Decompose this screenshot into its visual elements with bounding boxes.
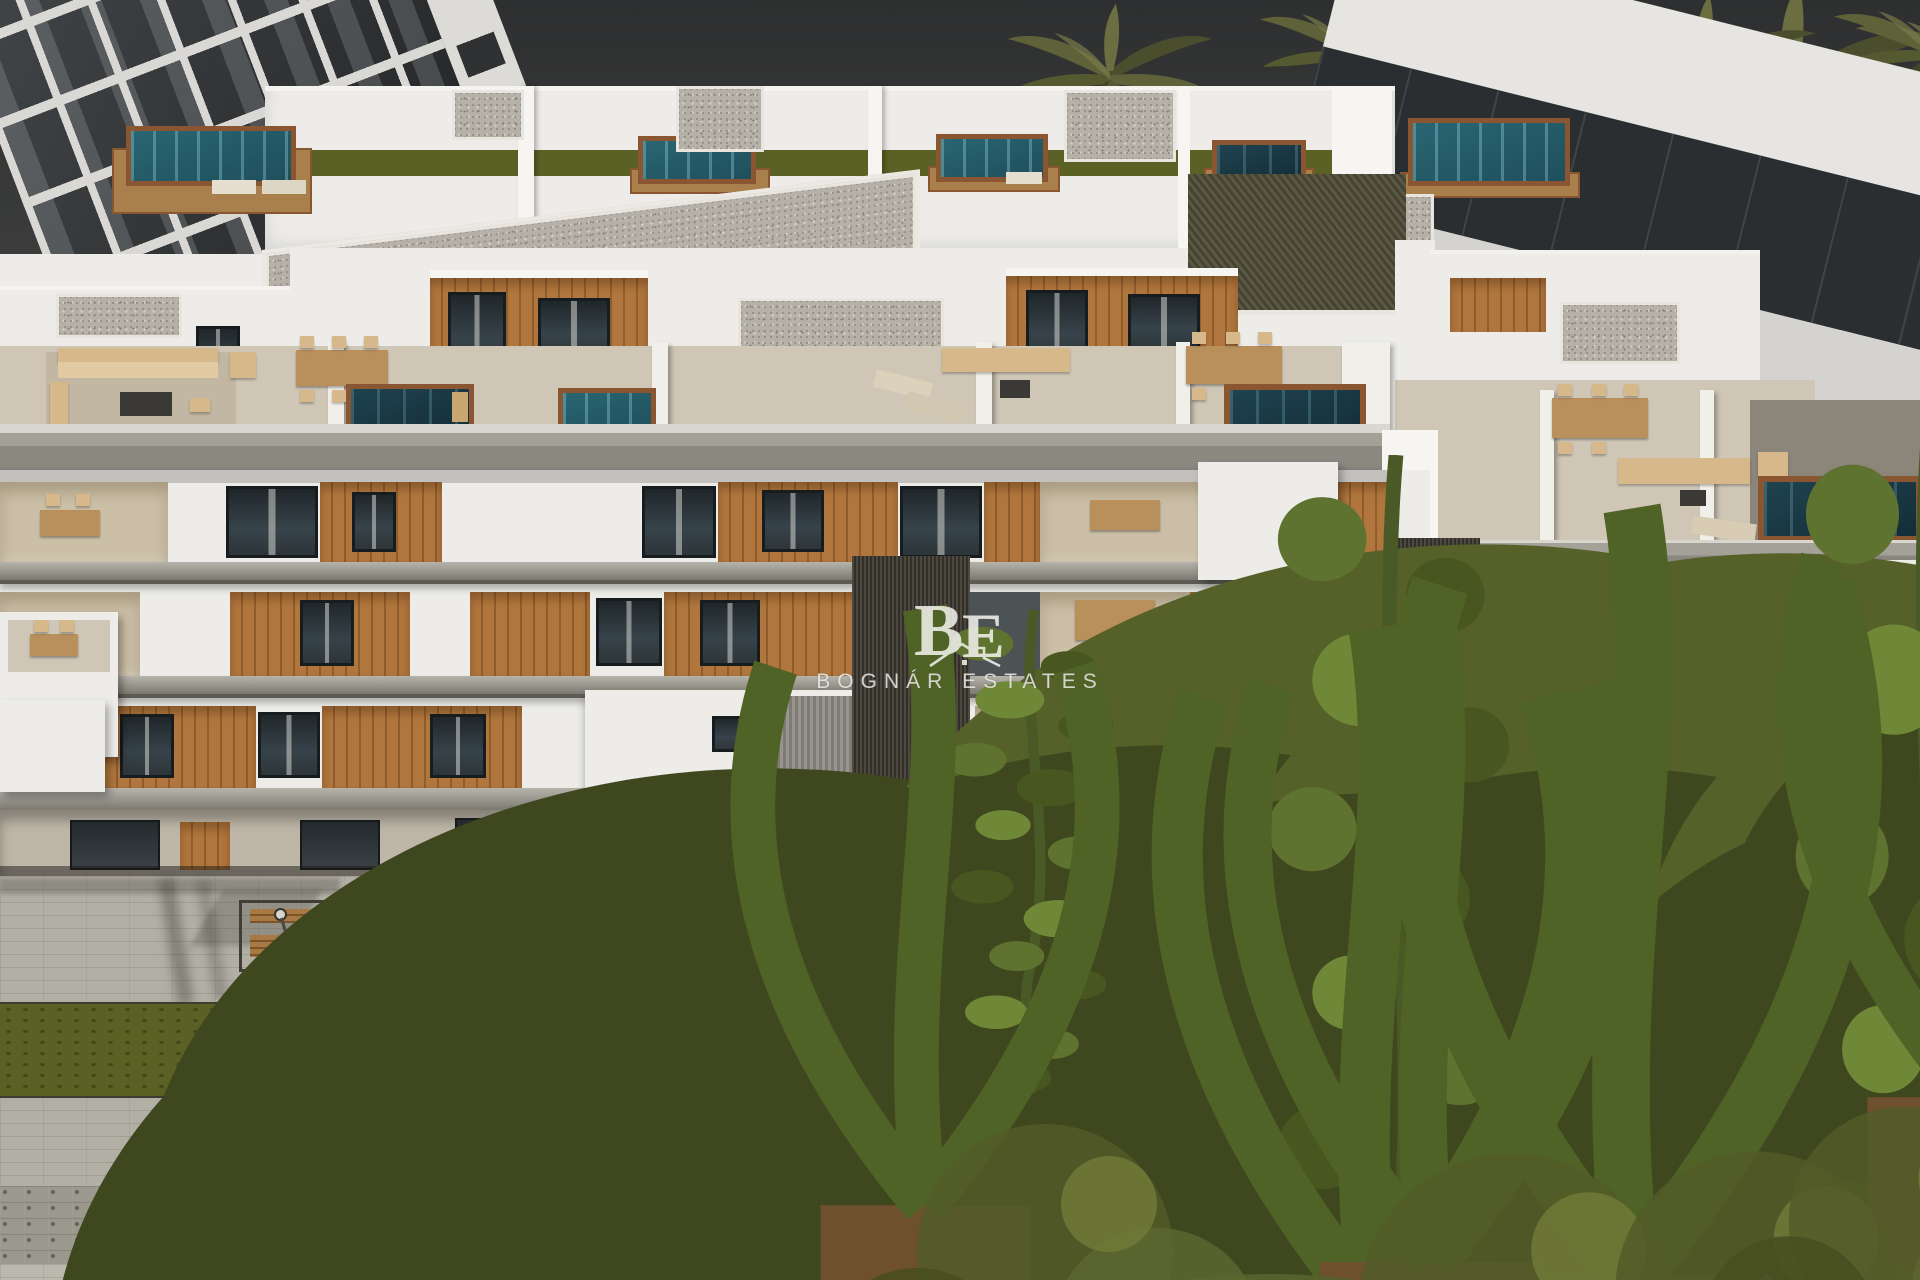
glass-panel — [1285, 706, 1355, 788]
balcony-floor — [1803, 570, 1911, 614]
window — [258, 712, 320, 778]
architectural-render: B E BOGNÁR ESTATES — [0, 0, 1920, 1280]
window — [430, 714, 486, 778]
bench-seat — [688, 935, 754, 957]
balcony-volume — [1795, 560, 1920, 690]
pouf — [190, 398, 210, 412]
street-pavement — [0, 1264, 1920, 1280]
sun-lounger — [1006, 172, 1042, 184]
watermark: B E BOGNÁR ESTATES — [810, 594, 1110, 704]
coffee-table — [120, 392, 172, 416]
sofa — [58, 348, 218, 362]
window — [700, 600, 760, 666]
wood-clad-wall — [322, 706, 522, 788]
chair — [1192, 388, 1206, 400]
coffee-table — [1680, 490, 1706, 506]
dining-table — [296, 350, 388, 386]
window — [1510, 714, 1562, 778]
roof-fascia — [1006, 268, 1238, 276]
wood-door — [180, 822, 230, 870]
dining-table — [1740, 612, 1800, 642]
chair — [1192, 332, 1206, 344]
bench — [677, 900, 771, 972]
room-interior — [0, 482, 168, 562]
chair — [1558, 442, 1572, 454]
dining-table — [1186, 346, 1282, 384]
chair — [1592, 384, 1606, 396]
bench-seat — [250, 935, 316, 957]
chair — [300, 390, 314, 402]
chair — [1624, 384, 1638, 396]
glass-panel — [455, 818, 555, 870]
wood-clad-wall — [1190, 592, 1305, 676]
chair — [332, 390, 346, 402]
chair — [300, 336, 314, 348]
bench-seat — [1724, 937, 1790, 959]
chair — [34, 620, 48, 632]
sofa — [58, 362, 218, 378]
window — [226, 486, 318, 558]
room-interior — [1040, 482, 1212, 562]
chair — [46, 494, 60, 506]
stair-bulkhead-gravel — [1064, 90, 1176, 162]
stair-bulkhead-gravel — [1560, 302, 1680, 364]
wood-clad-wall — [984, 482, 1040, 562]
coffee-table — [1000, 380, 1030, 398]
sofa — [942, 348, 1070, 372]
glass-panel — [1250, 818, 1340, 870]
rooftop-pool — [1408, 118, 1570, 186]
chair — [1558, 384, 1572, 396]
bench-backrest — [688, 909, 754, 923]
sun-lounger — [262, 180, 306, 194]
stair-bulkhead-gravel — [56, 294, 182, 338]
balcony-volume — [1198, 462, 1338, 580]
bench-backrest — [1234, 909, 1300, 923]
chair — [1226, 332, 1240, 344]
pool-steps — [452, 392, 468, 422]
window — [762, 490, 824, 552]
bench-seat — [1234, 935, 1300, 957]
window — [120, 714, 174, 778]
window — [300, 600, 354, 666]
bench — [1713, 902, 1807, 974]
window — [1760, 712, 1824, 778]
chair — [60, 620, 74, 632]
armchair — [1758, 452, 1788, 476]
window — [352, 492, 396, 552]
window — [1310, 598, 1370, 666]
window — [596, 598, 662, 666]
window — [712, 716, 770, 752]
dining-table — [40, 510, 100, 536]
wood-clad-wall — [1575, 592, 1705, 676]
window — [1500, 596, 1570, 666]
roof-fascia — [430, 270, 648, 278]
window — [900, 486, 982, 558]
armchair — [230, 352, 256, 378]
chair — [364, 336, 378, 348]
watermark-brand-name: BOGNÁR ESTATES — [810, 670, 1110, 694]
chair — [1258, 332, 1272, 344]
grass-island — [0, 1002, 897, 1098]
chair — [76, 494, 90, 506]
stair-bulkhead-gravel — [676, 86, 764, 152]
sofa — [50, 382, 68, 426]
rooftop-pool — [126, 126, 296, 186]
grass-island — [1027, 1002, 1920, 1098]
dining-table — [1090, 500, 1160, 530]
balcony-volume — [0, 700, 105, 792]
glass-panel — [300, 820, 380, 870]
road — [0, 1186, 1920, 1264]
sun-lounger — [212, 180, 256, 194]
wood-clad-wall — [1338, 482, 1394, 562]
planter-box — [990, 760, 1110, 780]
slab-edge — [0, 562, 1390, 584]
sofa — [1618, 458, 1750, 484]
bench — [1223, 900, 1317, 972]
window — [642, 486, 716, 558]
terrace-pool — [1758, 476, 1920, 542]
room-interior — [1630, 708, 1750, 788]
glass-panel — [575, 818, 670, 870]
stair-bulkhead-gravel — [452, 90, 524, 140]
room-interior — [975, 706, 1205, 788]
dining-table — [30, 634, 78, 656]
dining-table — [1552, 398, 1648, 438]
wood-clad-wall — [470, 592, 590, 676]
chair — [332, 336, 346, 348]
watermark-roof-icon — [928, 640, 1002, 668]
chair — [1592, 442, 1606, 454]
wood-clad-wall — [1450, 278, 1546, 332]
glass-panel — [70, 820, 160, 870]
bench-backrest — [1724, 911, 1790, 925]
